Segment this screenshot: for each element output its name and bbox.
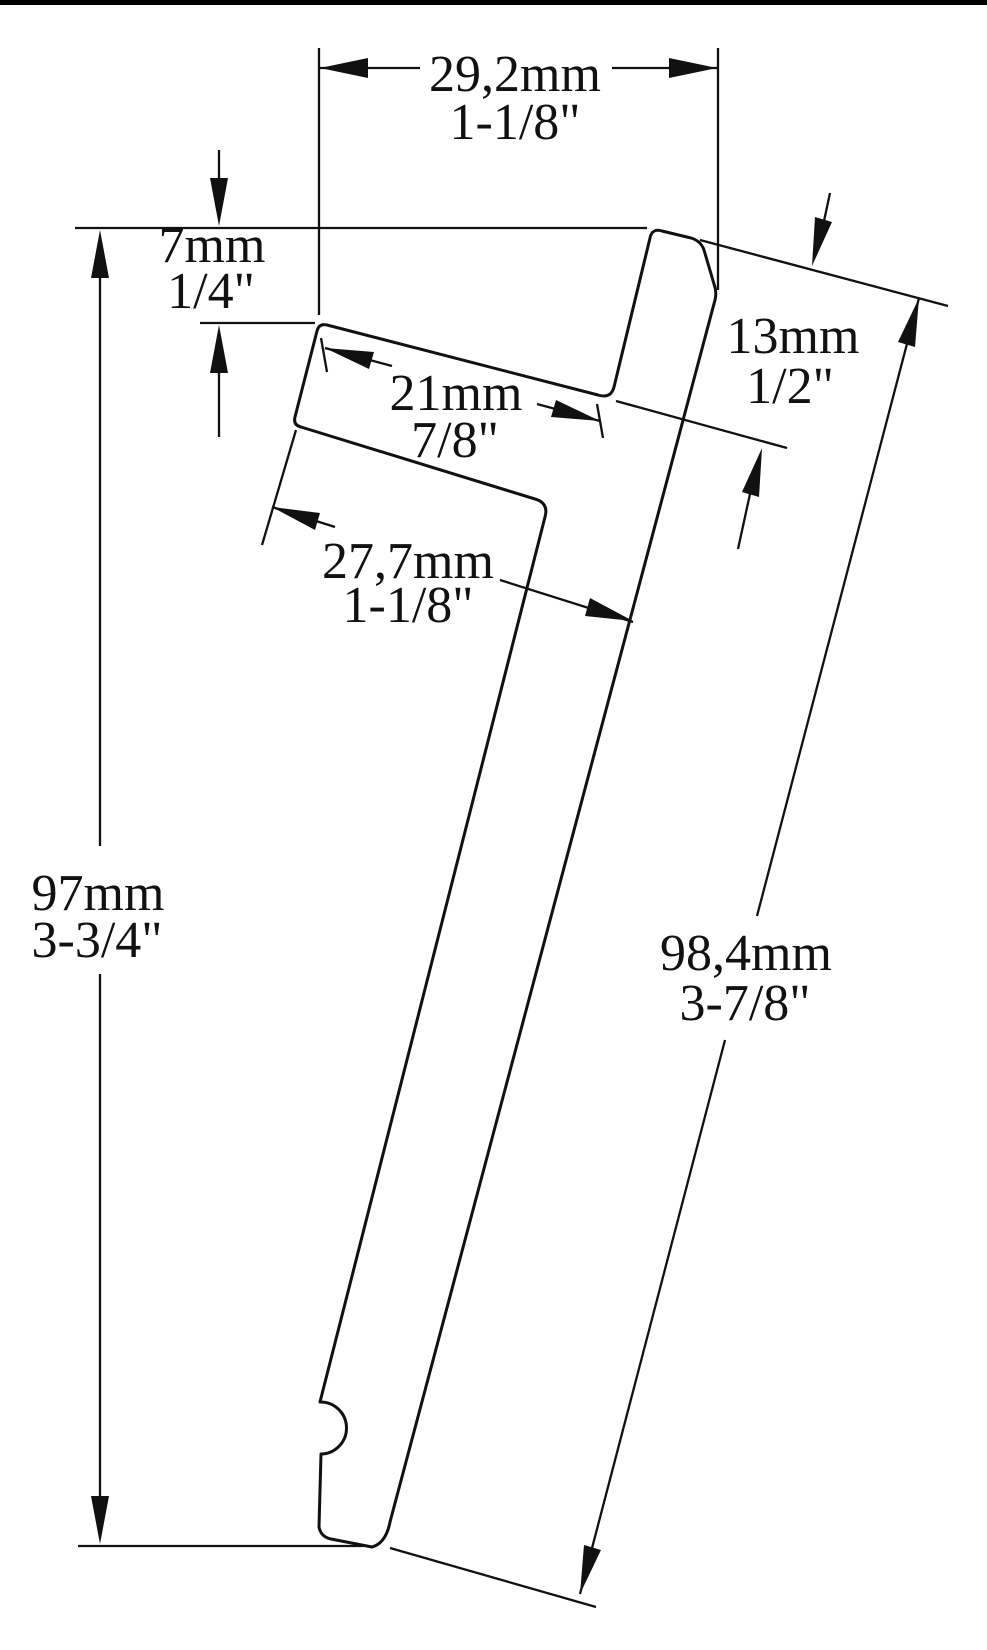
arrow-leglength-bottom (580, 1545, 601, 1594)
profile-outline (295, 230, 716, 1547)
label-leg-protrusion-imperial: 1/2" (746, 358, 834, 415)
label-top-offset-imperial: 1/4" (167, 263, 255, 320)
label-overall-width-imperial: 1-1/8" (450, 94, 581, 151)
arrow-protrusion-down (812, 217, 832, 266)
leg-protrusion-stem-upper (824, 193, 830, 221)
arrow-leglength-top (898, 298, 919, 347)
lower-depth-extension-left (262, 430, 296, 545)
label-leg-protrusion-metric: 13mm (727, 308, 860, 365)
drawing-canvas: 29,2mm 1-1/8" 7mm 1/4" 13mm 1/2" 21mm 7/… (0, 0, 987, 1650)
label-leg-length-metric: 98,4mm (660, 925, 832, 982)
arrow-height-bottom (91, 1496, 109, 1544)
leg-protrusion-stem-lower (738, 494, 750, 549)
label-leg-length-imperial: 3-7/8" (680, 975, 811, 1032)
arrow-height-top (91, 230, 109, 278)
profile-technical-drawing: 29,2mm 1-1/8" 7mm 1/4" 13mm 1/2" 21mm 7/… (0, 0, 987, 1650)
label-lower-depth-imperial: 1-1/8" (343, 577, 474, 634)
label-overall-height-imperial: 3-3/4" (32, 912, 163, 969)
arrow-offset-up (210, 325, 228, 373)
top-right-extension (700, 240, 948, 306)
arrow-width-left (320, 58, 368, 78)
arrow-protrusion-up (742, 448, 762, 497)
leg-length-bottom-extension (390, 1548, 596, 1607)
dimension-labels: 29,2mm 1-1/8" 7mm 1/4" 13mm 1/2" 21mm 7/… (32, 46, 860, 1032)
leg-length-dimline-lower (580, 1040, 725, 1594)
top-edge-bar (0, 0, 987, 5)
arrow-depth-left (272, 507, 320, 530)
arrow-width-right (669, 58, 717, 78)
label-channel-width-imperial: 7/8" (411, 412, 499, 469)
